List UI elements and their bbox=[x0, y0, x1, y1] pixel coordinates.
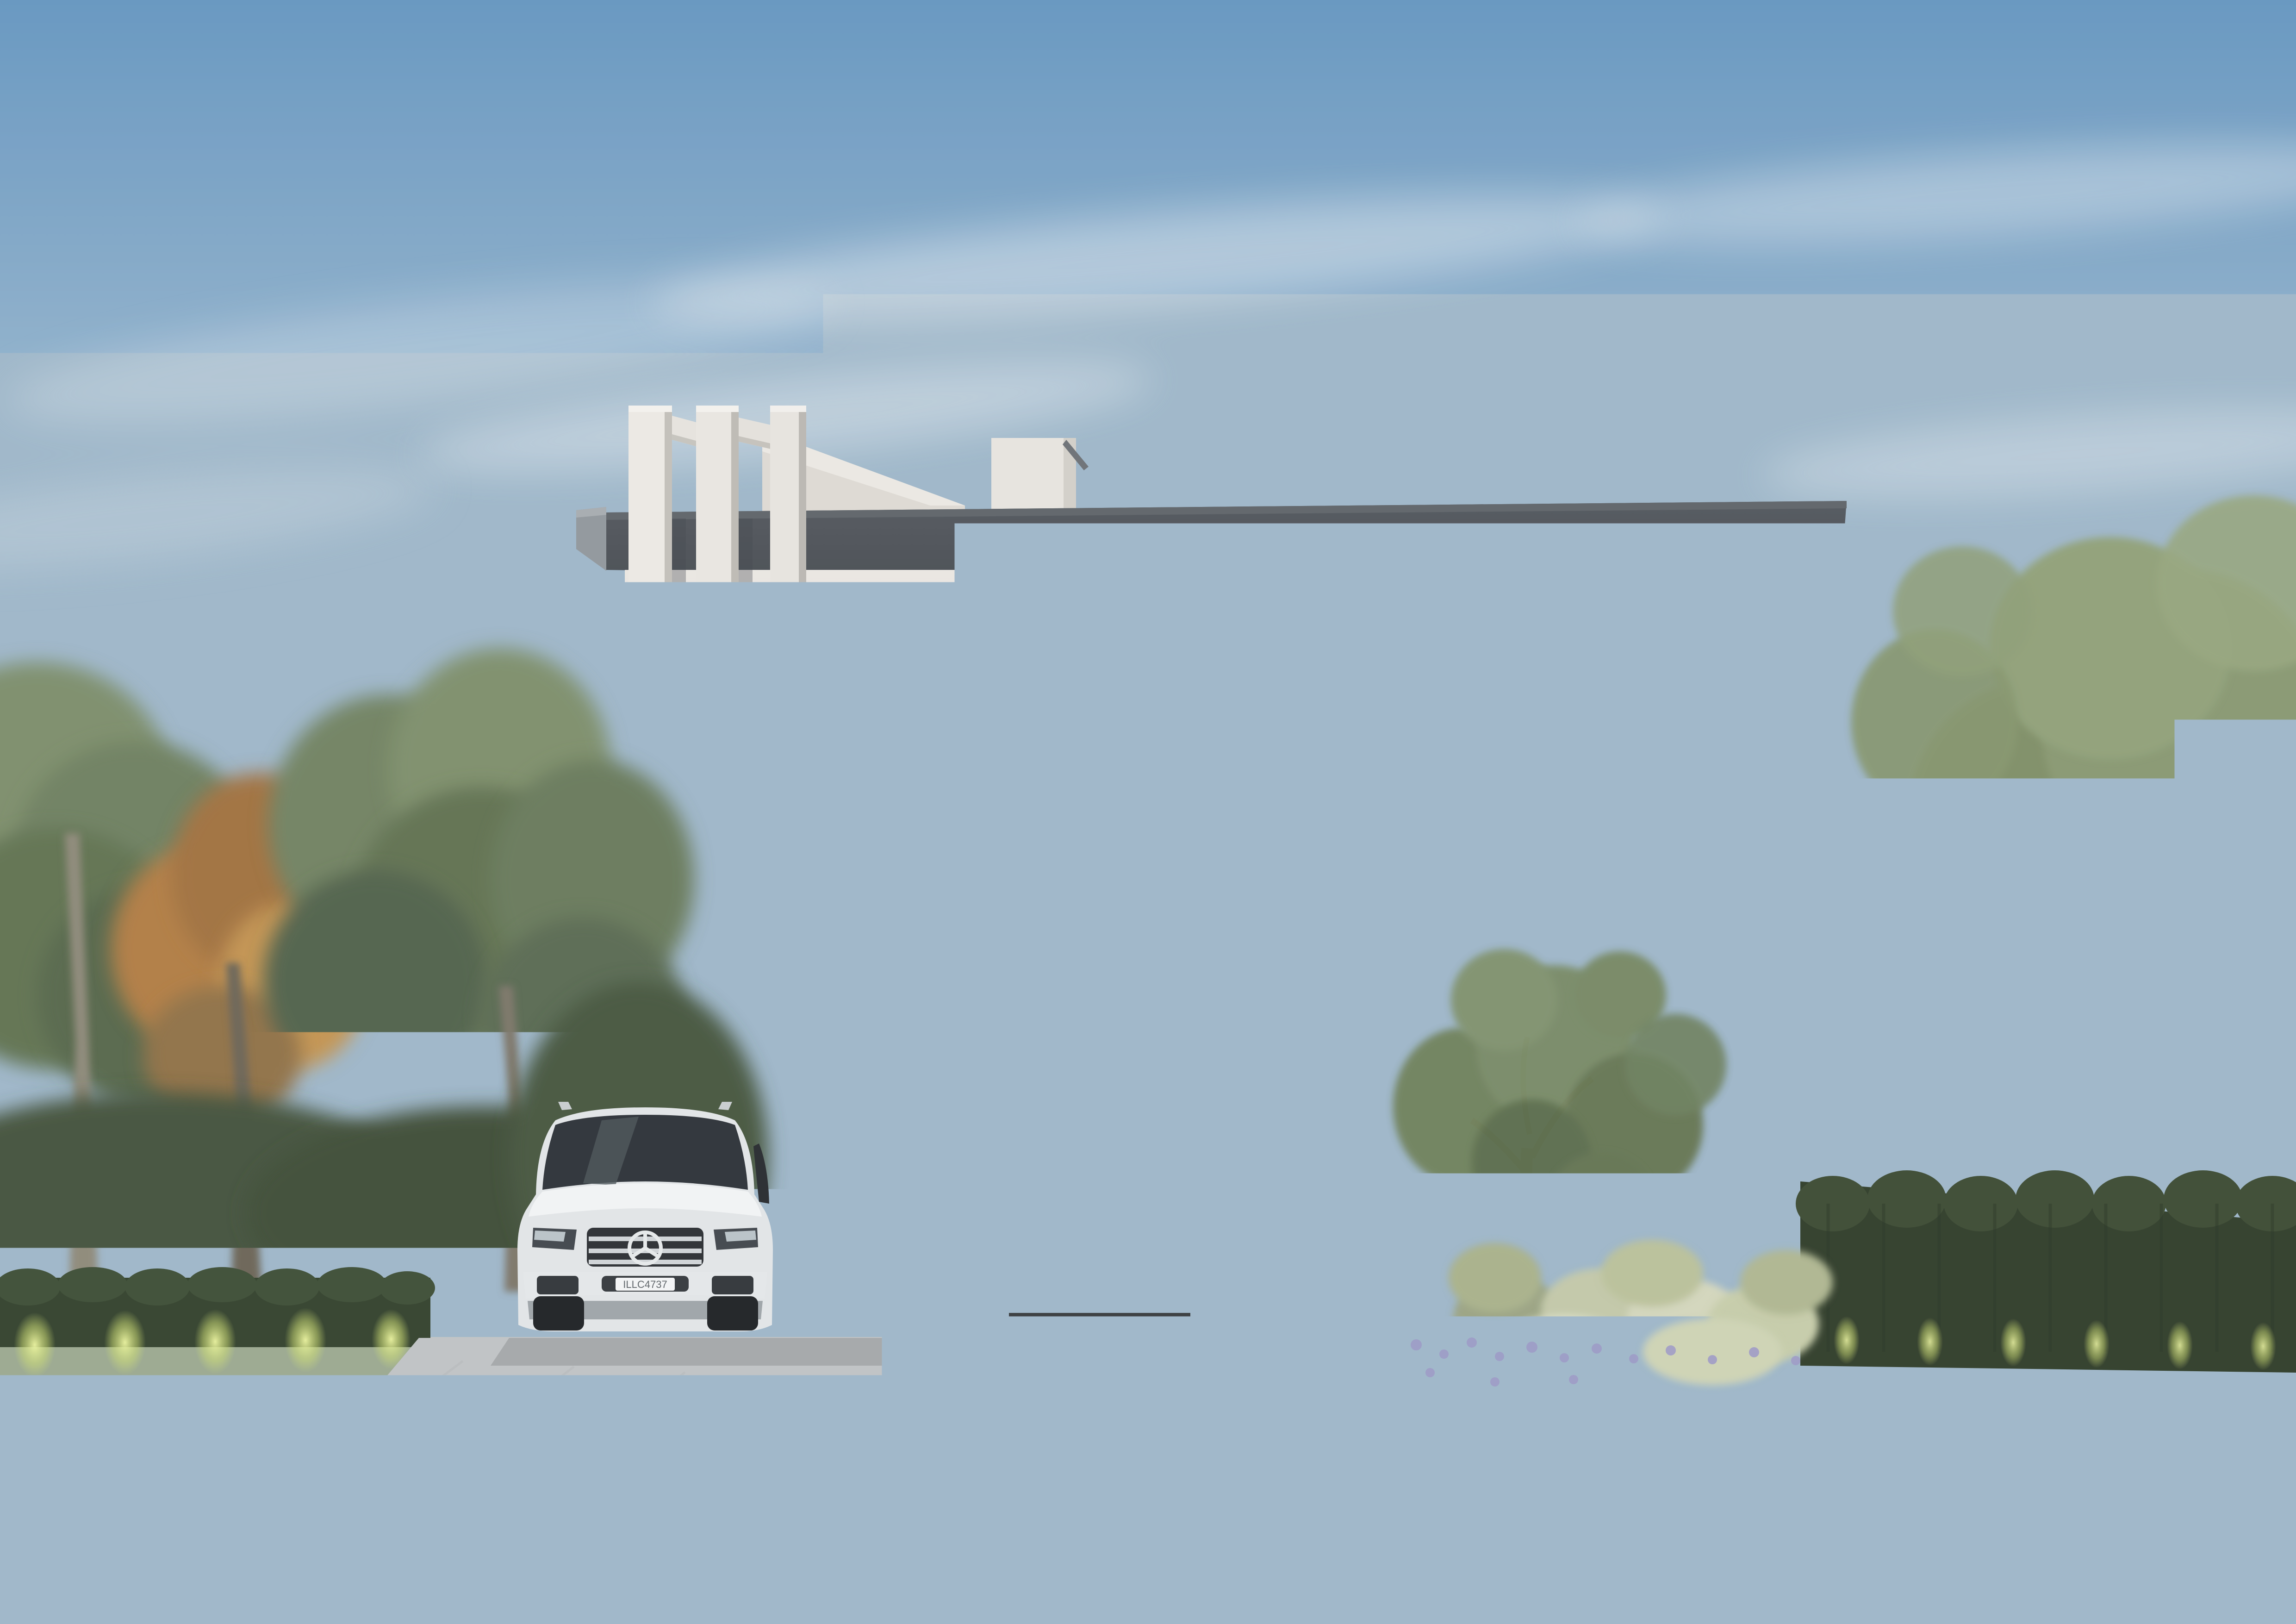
svg-text:4 BATHROOM: 4 BATHROOM bbox=[1986, 1572, 2160, 1609]
svg-text:2 CARPORT: 2 CARPORT bbox=[1330, 1572, 1476, 1609]
svg-text:4 BEDROOM: 4 BEDROOM bbox=[1668, 1572, 1821, 1609]
svg-text:271 SQ.M.: 271 SQ.M. bbox=[999, 1572, 1128, 1609]
svg-text:MODERN STYLE: MODERN STYLE bbox=[629, 1572, 827, 1609]
svg-text:MODERN 03: MODERN 03 bbox=[75, 1439, 532, 1545]
